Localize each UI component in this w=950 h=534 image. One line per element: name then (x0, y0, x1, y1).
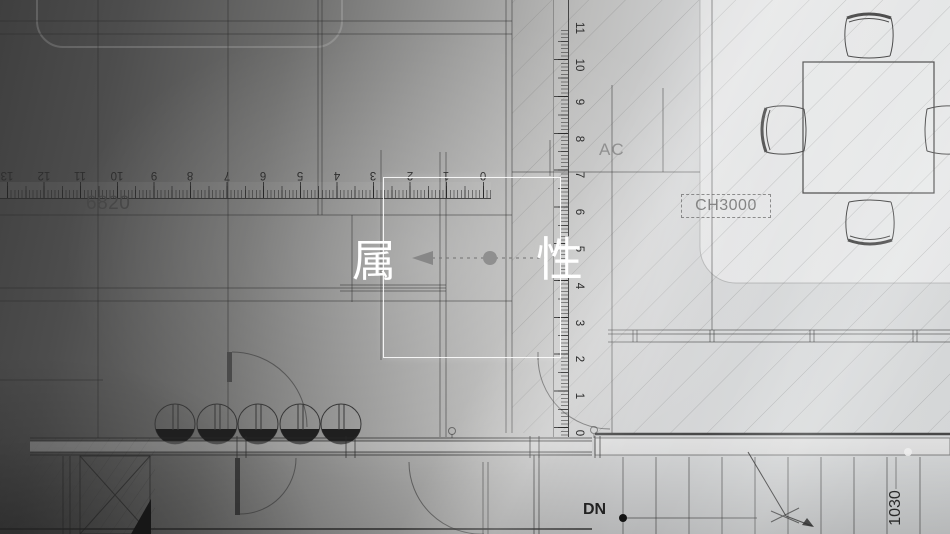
dimension-label-6820: 6820 (86, 194, 130, 213)
title-char-right: 性 (536, 237, 583, 284)
title-char-left: 属 (352, 240, 396, 284)
selection-marquee (383, 177, 561, 358)
stair-label-dn: DN (583, 502, 606, 518)
cad-banner-stage: 131211109876543210 11109876543210 属 性 68… (0, 0, 950, 534)
room-label-ac: AC (599, 141, 625, 158)
dimension-label-1030: 1030 (888, 486, 904, 530)
item-label-ch3000: CH3000 (681, 194, 771, 218)
